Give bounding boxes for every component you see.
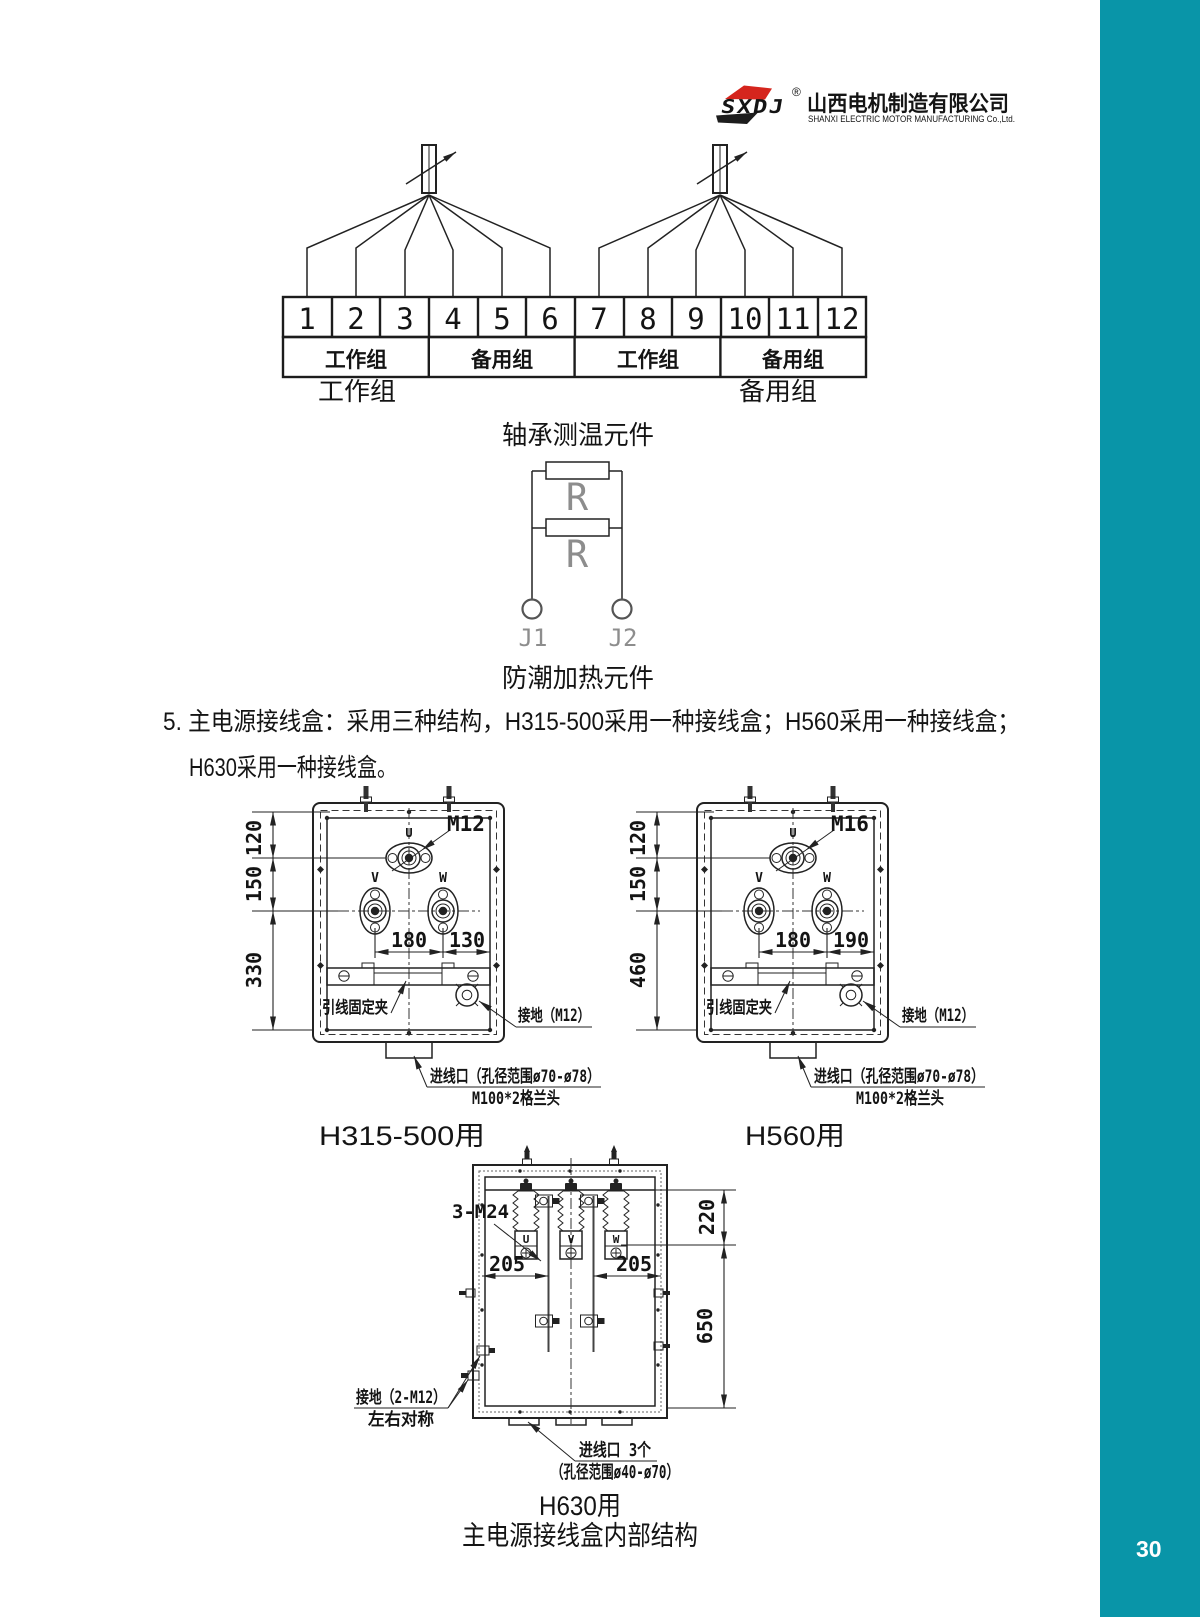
- logo-company-name-en: SHANXI ELECTRIC MOTOR MANUFACTURING Co.,…: [808, 114, 1015, 124]
- heater-diagram-caption: 防潮加热元件: [502, 663, 654, 693]
- junction-box-h315: M12 130 330 H315-500用: [242, 786, 601, 1151]
- logo-brand-text: SXDJ: [719, 95, 787, 118]
- terminal-number: 4: [444, 302, 461, 336]
- heater-terminal-j2: [613, 600, 632, 619]
- group-cell-label: 备用组: [761, 348, 824, 372]
- terminal-number: 5: [493, 302, 510, 336]
- h315-stud-size-label: M12: [447, 812, 485, 836]
- cable-slash-left: [406, 152, 456, 184]
- h630-caption: H630用: [539, 1491, 621, 1521]
- document-page: 30: [0, 0, 1200, 1617]
- h630-entry-label-1: 进线口 3个: [579, 1440, 651, 1461]
- h630-dim-220: 220: [695, 1199, 719, 1235]
- terminal-number: 1: [298, 302, 315, 336]
- h560-caption: H560用: [745, 1121, 845, 1151]
- group-cell-label: 工作组: [325, 348, 387, 372]
- heater-terminal-j1: [523, 600, 542, 619]
- terminal-number: 7: [590, 302, 607, 336]
- junction-box-h630: U V W 3-M24 205 205 220 650: [354, 1145, 736, 1551]
- h560-stud-size-label: M16: [831, 812, 869, 836]
- terminal-number: 11: [776, 302, 811, 336]
- terminal-number: 6: [541, 302, 558, 336]
- h630-terminal-v: V: [568, 1233, 575, 1246]
- company-logo: SXDJ ® 山西电机制造有限公司 SHANXI ELECTRIC MOTOR …: [716, 85, 1015, 124]
- section5-line2: H630采用一种接线盒。: [189, 754, 397, 782]
- terminal-number: 2: [347, 302, 364, 336]
- h630-ground-label-1: 接地（2-M12）: [356, 1387, 446, 1408]
- h630-dim-205-left: 205: [489, 1252, 525, 1276]
- h315-dim-130: 130: [449, 928, 485, 952]
- h630-dim-205-right: 205: [616, 1252, 652, 1276]
- ground-bolt-2: [477, 1346, 495, 1355]
- h315-caption: H315-500用: [319, 1121, 485, 1151]
- logo-company-name-cn: 山西电机制造有限公司: [807, 91, 1009, 116]
- bearing-rtd-diagram: 1 2 3 4 5 6 7 8 9 10 11 12 工作组 备用组 工作组: [283, 145, 866, 450]
- terminal-number: 3: [396, 302, 413, 336]
- j1-label: J1: [519, 624, 548, 652]
- h630-dim-650: 650: [693, 1308, 717, 1344]
- h630-entry-label-2: （孔径范围ø40-ø70）: [551, 1462, 679, 1483]
- section5-paragraph: 5. 主电源接线盒：采用三种结构，H315-500采用一种接线盒；H560采用一…: [163, 708, 1020, 782]
- footer-caption: 主电源接线盒内部结构: [462, 1521, 698, 1551]
- resistor-2-label: R: [566, 533, 589, 576]
- cable-slash-right: [697, 152, 747, 184]
- working-group-label: 工作组: [318, 378, 396, 406]
- h630-terminal-u: U: [523, 1233, 530, 1246]
- heater-diagram: R R J1 J2 防潮加热元件: [502, 462, 654, 693]
- j2-label: J2: [609, 624, 638, 652]
- terminal-strip: 1 2 3 4 5 6 7 8 9 10 11 12 工作组 备用组 工作组: [283, 297, 866, 377]
- junction-box-h560: M16 190 460 H560用: [626, 786, 985, 1151]
- h315-dim-330: 330: [242, 952, 266, 988]
- terminal-number: 8: [639, 302, 656, 336]
- h630-ground-label-2: 左右对称: [368, 1409, 434, 1430]
- h560-dim-460: 460: [626, 952, 650, 988]
- section5-line1: 5. 主电源接线盒：采用三种结构，H315-500采用一种接线盒；H560采用一…: [163, 708, 1020, 736]
- h630-stud-size-label: 3-M24: [452, 1201, 509, 1223]
- terminal-number: 12: [825, 302, 860, 336]
- h560-dim-190: 190: [833, 928, 869, 952]
- group-cell-label: 备用组: [470, 348, 533, 372]
- bearing-diagram-caption: 轴承测温元件: [502, 420, 654, 450]
- backup-group-label: 备用组: [739, 378, 817, 406]
- terminal-number: 9: [687, 302, 704, 336]
- terminal-number: 10: [728, 302, 763, 336]
- group-cell-label: 工作组: [617, 348, 679, 372]
- logo-registered-mark: ®: [792, 85, 801, 99]
- technical-drawing-canvas: U V W 120 150 180 引线固定夹 接地（M12） 进线口（孔径范围…: [0, 0, 1200, 1617]
- h630-terminal-w: W: [613, 1233, 620, 1246]
- resistor-1-label: R: [566, 476, 589, 519]
